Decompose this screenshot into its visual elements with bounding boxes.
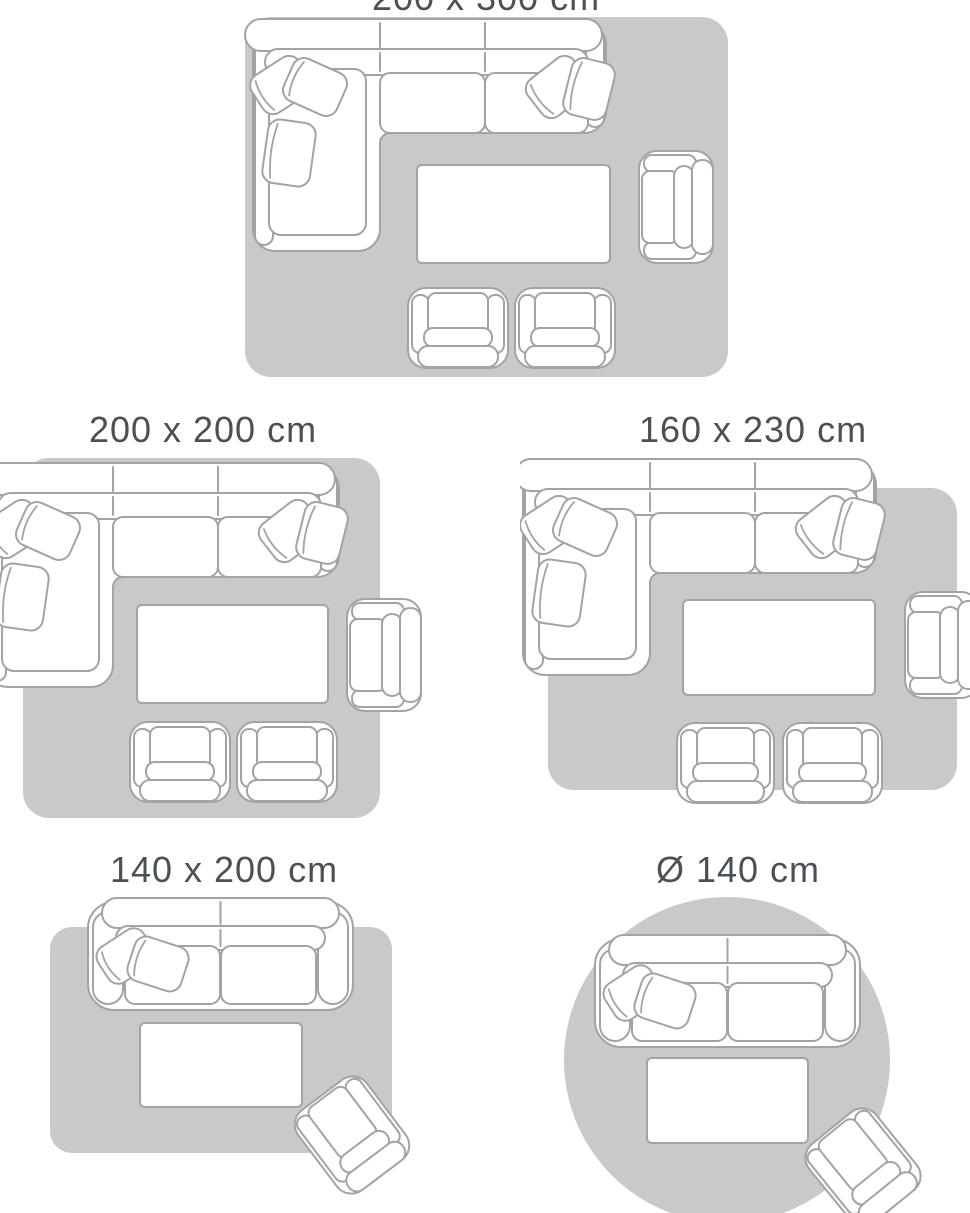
chair [237,722,337,802]
armchair [639,151,713,263]
coffee-table [683,600,875,695]
pillow [0,562,50,632]
room-layout-diagram-160x230 [520,455,970,823]
rug-size-label-200x200: 200 x 200 cm [3,412,403,448]
chair [515,288,615,368]
chair [677,723,774,803]
armchair [347,599,421,711]
pillow [261,118,317,188]
room-layout-diagram-200x300 [238,8,746,386]
pillow [531,558,587,628]
room-layout-diagram-diameter-140 [555,895,955,1213]
rug-size-guide: 200 x 300 cm 200 x 200 cm 160 x 230 cm 1… [0,0,970,1213]
rug-size-label-diameter-140: Ø 140 cm [538,852,938,888]
armchair [905,592,970,698]
coffee-table [647,1058,808,1143]
room-layout-diagram-200x200 [0,455,432,823]
chair [130,722,230,802]
two-seat-sofa [88,898,353,1010]
chair [783,723,882,803]
two-seat-sofa [595,935,860,1047]
coffee-table [417,165,610,263]
coffee-table [140,1023,302,1107]
rug-size-label-140x200: 140 x 200 cm [24,852,424,888]
coffee-table [137,605,328,703]
rug-size-label-160x230: 160 x 230 cm [553,412,953,448]
room-layout-diagram-140x200 [40,895,430,1213]
chair [408,288,508,368]
